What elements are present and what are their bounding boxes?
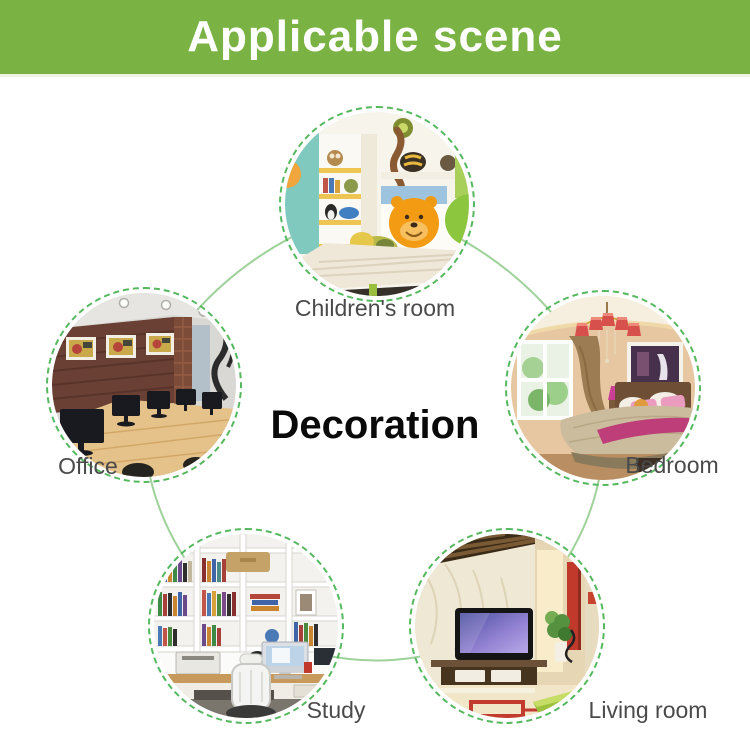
center-title: Decoration <box>271 403 480 448</box>
childrens-room-photo <box>285 112 469 296</box>
office-photo <box>52 293 236 477</box>
scene-label-bedroom: Bedroom <box>625 452 718 479</box>
scene-label-childrens-room: Children's room <box>295 295 455 322</box>
study-photo <box>154 534 338 718</box>
scene-node-study <box>148 528 344 724</box>
scene-label-study: Study <box>307 697 366 724</box>
scene-node-living-room <box>409 528 605 724</box>
scene-label-office: Office <box>58 453 118 480</box>
living-room-photo <box>415 534 599 718</box>
decoration-diagram: Decoration <box>0 0 750 750</box>
page: Applicable scene Decoration <box>0 0 750 750</box>
scene-label-living-room: Living room <box>589 697 708 724</box>
scene-node-childrens-room <box>279 106 475 302</box>
